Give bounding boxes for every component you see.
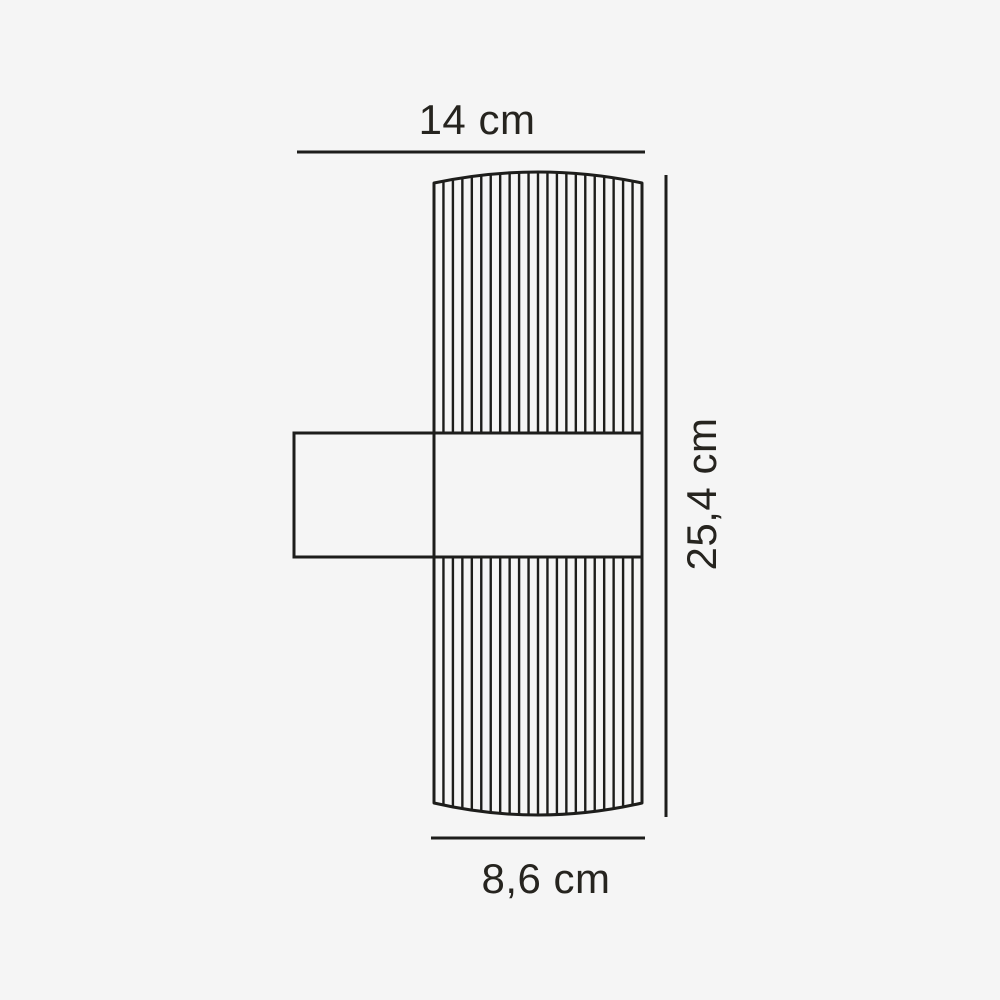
height-dimension-label: 25,4 cm	[681, 418, 723, 571]
lamp-drawing	[0, 0, 1000, 1000]
diameter-dimension-label: 8,6 cm	[481, 858, 610, 900]
drawing-strokes	[294, 152, 666, 838]
dimension-diagram: 14 cm 25,4 cm 8,6 cm	[0, 0, 1000, 1000]
upper-ribs	[443, 173, 632, 432]
lamp-body-band	[434, 433, 642, 557]
width-dimension-label: 14 cm	[419, 99, 536, 141]
wall-bracket	[294, 433, 434, 557]
lower-ribs	[443, 558, 632, 814]
